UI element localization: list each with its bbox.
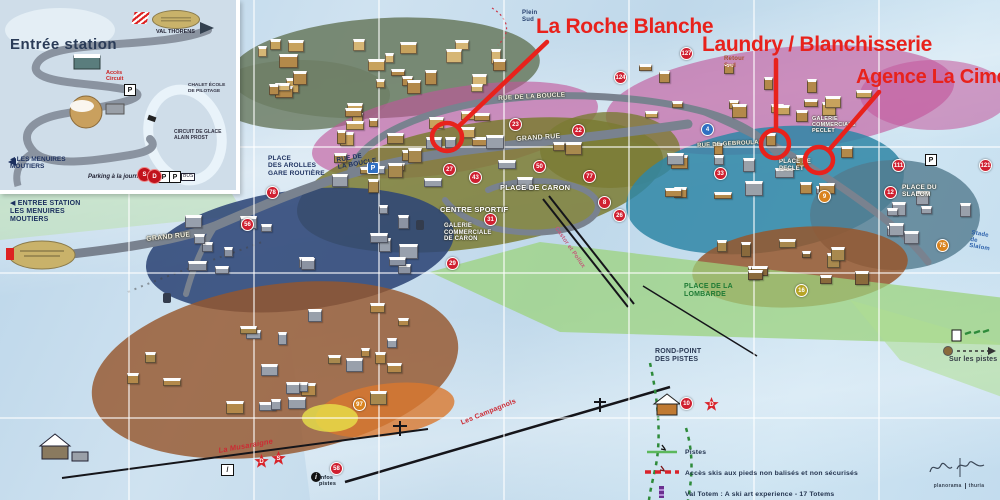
- inset-acces-circuit: Accès Circuit: [106, 70, 123, 83]
- map-marker-127: 127: [680, 47, 693, 60]
- map-label-place-des-arolles: PLACE DES AROLLES GARE ROUTIÈRE: [268, 155, 325, 177]
- car-icon: [147, 115, 156, 122]
- building: [775, 105, 791, 115]
- walker-sign-icon: [952, 330, 961, 341]
- zone-brown-e: [689, 220, 910, 315]
- piste-line-icon: [645, 443, 685, 461]
- building: [800, 182, 812, 194]
- inset-building-roof: [74, 54, 100, 58]
- building: [185, 215, 202, 228]
- building: [240, 326, 257, 334]
- building: [856, 90, 872, 98]
- building: [261, 224, 271, 232]
- annotation-label-la-roche-blanche: La Roche Blanche: [536, 15, 713, 39]
- parking-icon: P: [169, 171, 181, 183]
- building: [820, 275, 832, 284]
- map-marker-77: 77: [583, 170, 596, 183]
- building: [145, 352, 156, 363]
- building: [346, 121, 364, 130]
- building: [493, 59, 506, 70]
- building: [387, 133, 405, 143]
- map-marker-8: 8: [598, 196, 611, 209]
- map-marker-78: 78: [266, 186, 279, 199]
- building: [921, 206, 932, 214]
- building: [385, 53, 394, 63]
- building: [796, 110, 808, 122]
- map-marker-29: 29: [446, 257, 459, 270]
- building: [400, 42, 417, 54]
- map-label-infos-pistes: Infos pistes: [319, 475, 336, 487]
- map-label-centre-sportif: CENTRE SPORTIF: [440, 206, 508, 214]
- credit-signature: planorama thuria: [922, 456, 996, 489]
- building: [346, 358, 363, 371]
- building: [293, 71, 306, 85]
- building: [659, 71, 670, 83]
- building: [215, 266, 229, 274]
- building: [286, 382, 300, 395]
- building: [163, 378, 181, 386]
- gondola-cabin-icon: [416, 220, 424, 230]
- parking-icon: P: [124, 84, 136, 96]
- legend: Pistes Accès skis aux pieds non balisés …: [645, 443, 858, 500]
- star-marker-D: D: [704, 397, 719, 412]
- sbox-marker-/: /: [221, 464, 234, 476]
- inset-title: Entrée station: [10, 36, 117, 53]
- map-label-rue-de-la-boucle-nord: RUE DE LA BOUCLE: [498, 91, 566, 102]
- map-label-les-campagnols: Les Campagnols: [460, 398, 517, 427]
- map-label-grand-rue-ouest: GRAND RUE: [146, 231, 191, 243]
- building: [271, 399, 281, 410]
- building: [328, 355, 341, 364]
- building: [224, 247, 233, 258]
- building: [887, 208, 898, 216]
- village-sign-oval: [6, 241, 75, 269]
- building: [389, 257, 406, 266]
- map-label-entree-station-ouest: ◀ ENTREE STATION LES MENUIRES MOUTIERS: [10, 200, 81, 223]
- building: [553, 142, 565, 151]
- inset-circuit-glace: CIRCUIT DE GLACE ALAIN PROST: [174, 130, 222, 142]
- map-label-rond-point-des-pistes: ROND-POINT DES PISTES: [655, 348, 701, 364]
- building: [741, 242, 751, 257]
- building: [429, 117, 444, 129]
- building: [748, 270, 763, 281]
- building: [261, 364, 278, 375]
- lift-cable-musaraigne: [62, 429, 428, 478]
- building: [471, 84, 483, 92]
- building: [714, 192, 732, 199]
- building: [279, 54, 298, 67]
- ski-access-icon: [645, 464, 685, 482]
- lift-pylon: [393, 421, 407, 436]
- legend-row-acces: Accès skis aux pieds non balisés et non …: [645, 464, 858, 482]
- bus-badge: BUS: [181, 173, 195, 181]
- building: [379, 205, 389, 214]
- hatch-mark: [6, 248, 14, 260]
- lift-pylon: [594, 398, 606, 412]
- annotation-label-laundry: Laundry / Blanchisserie: [702, 33, 932, 57]
- building: [270, 39, 281, 49]
- map-marker-10: 10: [680, 397, 693, 410]
- building: [288, 397, 305, 409]
- map-marker-16: 16: [795, 284, 808, 297]
- building: [804, 99, 818, 107]
- map-marker-58: 58: [330, 462, 343, 475]
- building: [194, 234, 205, 245]
- building: [717, 240, 726, 252]
- hatch-stripes-icon: [131, 12, 149, 24]
- map-label-galerie-commerciale-peclet: GALERIE COMMERCIALE PECLET: [812, 116, 856, 134]
- building: [388, 163, 403, 178]
- map-label-rue-de-gebroulaz: RUE DE GEBROULAZ: [697, 140, 763, 150]
- map-marker-12: 12: [884, 186, 897, 199]
- building: [802, 251, 811, 258]
- map-label-place-de-caron: PLACE DE CARON: [500, 184, 570, 192]
- building: [398, 215, 409, 229]
- map-marker-26: 26: [613, 209, 626, 222]
- legend-label: Val Totem : A ski art experience - 17 To…: [685, 491, 834, 498]
- inset-building: [74, 56, 100, 69]
- footpath-dashes-icon: [965, 330, 989, 334]
- building: [766, 133, 776, 146]
- map-marker-97: 97: [353, 398, 366, 411]
- building: [645, 111, 658, 118]
- map-marker-75: 75: [936, 239, 949, 252]
- annotation-label-agence-la-cime: Agence La Cime: [856, 66, 1000, 89]
- legend-label: Accès skis aux pieds non balisés et non …: [685, 470, 858, 477]
- map-marker-9: 9: [818, 190, 831, 203]
- building: [855, 271, 869, 285]
- building: [745, 181, 763, 196]
- building: [369, 118, 378, 127]
- zone-orange: [312, 375, 458, 446]
- building: [387, 338, 397, 348]
- building: [667, 153, 684, 165]
- building: [188, 261, 207, 271]
- building: [665, 188, 683, 197]
- map-label-place-de-peclet: PLACE DE PECLET: [779, 159, 811, 172]
- map-marker-43: 43: [469, 171, 482, 184]
- building: [825, 96, 841, 108]
- building: [486, 135, 504, 149]
- map-label-place-du-slalom: PLACE DU SLALOM: [902, 184, 937, 199]
- building: [391, 69, 405, 76]
- building: [370, 391, 387, 404]
- corner-chalet: [40, 434, 88, 461]
- building: [308, 309, 322, 323]
- building: [375, 352, 386, 365]
- map-label-stade-de-slalom: Stade de Slalom: [968, 230, 999, 255]
- building: [368, 59, 385, 71]
- building: [361, 348, 370, 357]
- building: [345, 108, 362, 117]
- map-marker-23: 23: [509, 118, 522, 131]
- mountain-hut-icon: [654, 394, 680, 415]
- track-red-dotted: [492, 8, 507, 45]
- map-label-la-musaraigne: La Musaraigne: [218, 437, 274, 455]
- inset-menuires: ◀ LES MENUIRES MOUTIERS: [10, 156, 66, 171]
- map-marker-121: 121: [979, 159, 992, 172]
- building: [445, 137, 456, 148]
- map-marker-56: 56: [241, 218, 254, 231]
- building: [472, 74, 487, 85]
- building: [376, 79, 386, 88]
- inset-access-map: Entrée station VAL THORENS Accès Circuit…: [0, 0, 240, 194]
- resort-logo: SD: [137, 167, 161, 182]
- building: [474, 113, 490, 122]
- building: [672, 101, 683, 108]
- inset-chalet-ecole: CHALET ÉCOLE DE PILOTAGE: [188, 83, 225, 94]
- pbox-marker-P: P: [925, 154, 937, 166]
- building: [639, 64, 652, 71]
- gondola-cabin-icon: [163, 293, 171, 303]
- building: [460, 127, 474, 137]
- building: [743, 158, 755, 172]
- building: [258, 46, 267, 57]
- building: [408, 148, 422, 162]
- building: [498, 160, 516, 169]
- building: [387, 363, 402, 373]
- building: [565, 142, 581, 155]
- building: [764, 77, 773, 91]
- building: [370, 233, 388, 243]
- building: [779, 239, 795, 248]
- building: [332, 174, 348, 188]
- signature-scribble: [924, 456, 994, 478]
- building: [714, 155, 723, 165]
- legend-row-pistes: Pistes: [645, 443, 858, 461]
- building: [904, 231, 919, 244]
- inset-sign-label: VAL THORENS: [156, 29, 195, 35]
- totem-icon: [645, 485, 685, 500]
- building: [446, 49, 462, 63]
- building: [337, 130, 346, 144]
- map-label-sur-les-pistes: Sur les pistes: [949, 356, 997, 364]
- map-marker-50: 50: [533, 160, 546, 173]
- map-marker-27: 27: [443, 163, 456, 176]
- building: [226, 401, 244, 414]
- legend-row-totem: Val Totem : A ski art experience - 17 To…: [645, 485, 858, 500]
- building: [368, 179, 378, 193]
- building: [831, 247, 845, 261]
- building: [269, 84, 279, 95]
- inset-building: [106, 104, 124, 114]
- val-thorens-sign: [152, 10, 200, 29]
- map-marker-33: 33: [714, 167, 727, 180]
- arrow-head-icon: [988, 347, 996, 355]
- map-label-retour-sud: Retour Sud: [724, 56, 745, 69]
- building: [301, 258, 315, 270]
- map-marker-22: 22: [572, 124, 585, 137]
- building: [288, 40, 304, 51]
- map-label-galerie-commerciale-caron: GALERIE COMMERCIALE DE CARON: [444, 223, 492, 243]
- building: [370, 303, 385, 313]
- piste-area: [850, 300, 1000, 398]
- star-marker-D: D: [254, 454, 269, 469]
- map-marker-4: 4: [701, 123, 714, 136]
- badge-icon: [944, 347, 953, 356]
- building: [353, 39, 366, 51]
- building: [278, 332, 287, 345]
- building: [425, 70, 437, 85]
- inset-round-building: [70, 96, 102, 128]
- building: [889, 223, 904, 236]
- building: [960, 203, 971, 217]
- legend-label: Pistes: [685, 449, 706, 456]
- building: [424, 178, 443, 187]
- building: [841, 146, 854, 158]
- credit-studio: planorama: [931, 483, 965, 489]
- map-label-place-de-la-lombarde: PLACE DE LA LOMBARDE: [684, 283, 733, 299]
- building: [398, 318, 409, 326]
- resort-map-screenshot: 1241272322507727437856312926833941612111…: [0, 0, 1000, 500]
- building: [407, 80, 421, 93]
- direction-arrow-icon: [200, 22, 214, 34]
- star-marker-S: S: [271, 451, 286, 466]
- map-marker-111: 111: [892, 159, 905, 172]
- map-label-castor-et-pollux: Castor et Pollux: [552, 226, 586, 270]
- building: [732, 104, 747, 118]
- building: [426, 137, 442, 149]
- map-marker-124: 124: [614, 71, 627, 84]
- building: [807, 79, 817, 93]
- zone-yellow: [302, 404, 358, 432]
- building: [127, 373, 139, 384]
- credit-agency: thuria: [965, 483, 988, 489]
